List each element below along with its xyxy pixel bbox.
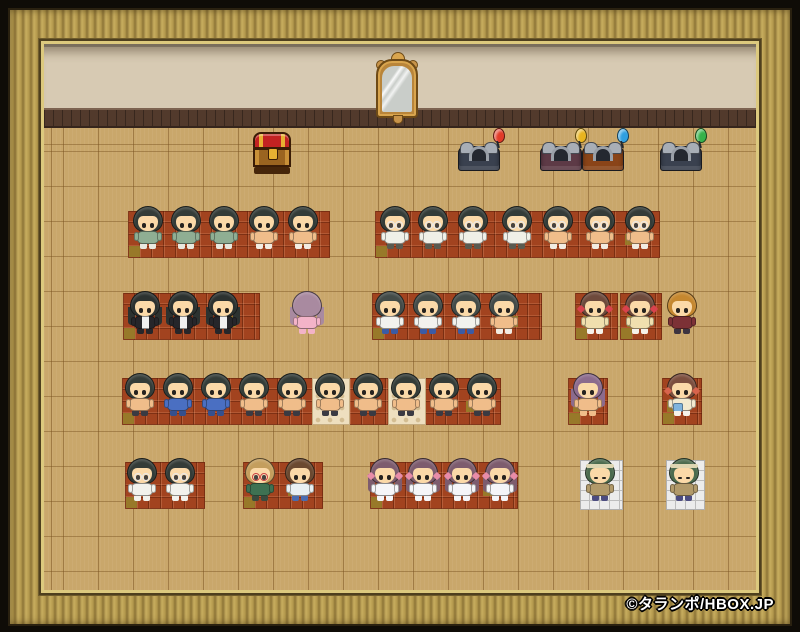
npc-eye-left <box>218 223 222 228</box>
glasses-icon <box>550 221 558 229</box>
npc-body <box>131 483 153 496</box>
npc-leg-right <box>641 329 648 334</box>
npc-head <box>292 291 322 317</box>
npc-eye-right <box>332 390 336 395</box>
npc-arm-right <box>187 399 192 408</box>
npc-arm-right <box>339 399 344 408</box>
chest-base <box>254 167 290 174</box>
npc-arm-left <box>448 484 453 493</box>
npc-body <box>589 231 611 244</box>
npc-leg-left <box>377 496 384 501</box>
npc-arm-right <box>301 399 306 408</box>
npc-arm-left <box>430 399 435 408</box>
npc-sprite-suit[interactable] <box>206 291 240 335</box>
npc-body <box>379 316 401 329</box>
npc-arm-right <box>377 399 382 408</box>
npc-body <box>137 231 159 244</box>
mirror-glass <box>382 66 412 112</box>
npc-arm-left <box>246 484 251 493</box>
npc-body <box>253 231 275 244</box>
npc-arm-right <box>509 484 514 493</box>
npc-arm-left <box>419 232 424 241</box>
npc-eye-right <box>188 223 192 228</box>
npc-arm-left <box>289 232 294 241</box>
npc-sprite-gray_shirtless[interactable] <box>487 291 521 335</box>
npc-arm-left <box>586 484 591 493</box>
npc-leg-left <box>425 244 432 249</box>
npc-eye-right <box>218 390 222 395</box>
npc-eye-right <box>597 308 601 313</box>
bed-seat[interactable] <box>457 140 501 172</box>
npc-sprite-glasses_shirtless[interactable] <box>583 206 617 250</box>
npc-arm-right <box>404 232 409 241</box>
npc-arm-left <box>586 232 591 241</box>
npc-sprite-glasses_clothed[interactable] <box>500 206 534 250</box>
npc-arm-right <box>649 317 654 326</box>
npc-arm-left <box>503 232 508 241</box>
npc-leg-right <box>369 411 376 416</box>
glasses-icon <box>180 473 188 481</box>
npc-leg-right <box>143 496 150 501</box>
npc-leg-left <box>458 329 465 334</box>
npc-sprite-suit[interactable] <box>166 291 200 335</box>
npc-leg-right <box>146 329 153 334</box>
npc-eye-right <box>502 475 506 480</box>
npc-leg-right <box>518 244 525 249</box>
npc-arm-right <box>513 317 518 326</box>
npc-leg-right <box>391 329 398 334</box>
headband <box>586 464 614 468</box>
npc-eye-left <box>678 477 682 479</box>
npc-arm-left <box>278 399 283 408</box>
npc-arm-right <box>491 399 496 408</box>
npc-eye-right <box>506 308 510 313</box>
npc-arm-right <box>693 484 698 493</box>
npc-body <box>281 398 303 411</box>
bed-seat[interactable] <box>581 140 625 172</box>
npc-sprite-brown_casual[interactable] <box>283 458 317 502</box>
npc-arm-right <box>597 399 602 408</box>
npc-leg-right <box>463 496 470 501</box>
npc-sprite-dark_shirtless[interactable] <box>465 373 499 417</box>
npc-eye-left <box>177 308 181 313</box>
npc-arm-right <box>609 232 614 241</box>
npc-eye-right <box>180 390 184 395</box>
npc-body <box>129 398 151 411</box>
npc-body <box>462 231 484 244</box>
npc-eye-right <box>430 308 434 313</box>
npc-arm-left <box>376 317 381 326</box>
npc-sprite-dark_shirtless[interactable] <box>389 373 423 417</box>
npc-arm-left <box>668 317 673 326</box>
npc-body <box>134 316 156 329</box>
npc-arm-left <box>626 232 631 241</box>
npc-arm-right <box>149 399 154 408</box>
npc-body <box>589 483 611 496</box>
treasure-chest[interactable] <box>253 132 291 174</box>
npc-leg-right <box>641 244 648 249</box>
npc-sprite-boy_green[interactable] <box>169 206 203 250</box>
npc-leg-right <box>225 244 232 249</box>
copyright-label: ©タランポ/HBOX.JP <box>626 593 774 614</box>
npc-leg-right <box>424 496 431 501</box>
npc-leg-right <box>683 329 690 334</box>
npc-body <box>471 398 493 411</box>
npc-leg-left <box>284 411 291 416</box>
npc-sprite-glasses_shirtless[interactable] <box>623 206 657 250</box>
npc-sprite-yellow_dress[interactable] <box>623 291 657 335</box>
npc-eye-left <box>324 390 328 395</box>
npc-leg-left <box>592 496 599 501</box>
npc-eye-right <box>302 475 306 480</box>
npc-eye-left <box>297 223 301 228</box>
npc-sprite-purple_long[interactable] <box>571 373 605 417</box>
npc-sprite-suit[interactable] <box>128 291 162 335</box>
npc-sprite-gold_spiky[interactable] <box>665 291 699 335</box>
npc-leg-right <box>187 244 194 249</box>
npc-eye-left <box>456 475 460 480</box>
npc-leg-right <box>474 244 481 249</box>
npc-eye-left <box>384 308 388 313</box>
npc-arm-left <box>354 399 359 408</box>
npc-eye-right <box>484 390 488 395</box>
npc-body <box>384 231 406 244</box>
npc-sprite-boy_green[interactable] <box>131 206 165 250</box>
npc-eye-right <box>590 390 594 395</box>
npc-leg-left <box>674 411 681 416</box>
npc-sprite-glasses_clothed[interactable] <box>378 206 412 250</box>
npc-sprite-blue_jacket[interactable] <box>161 373 195 417</box>
npc-eye-left <box>676 390 680 395</box>
npc-leg-left <box>208 411 215 416</box>
npc-body <box>169 483 191 496</box>
npc-eye-right <box>468 308 472 313</box>
npc-leg-right <box>265 244 272 249</box>
npc-arm-right <box>225 399 230 408</box>
npc-sprite-tee_jeans[interactable] <box>373 291 407 335</box>
npc-leg-right <box>184 329 191 334</box>
npc-leg-left <box>360 411 367 416</box>
npc-arm-left <box>468 399 473 408</box>
npc-sprite-purple_dress[interactable] <box>483 458 517 502</box>
glasses-icon <box>433 221 441 229</box>
npc-leg-left <box>674 329 681 334</box>
npc-arm-left <box>392 399 397 408</box>
npc-leg-left <box>496 329 503 334</box>
npc-leg-left <box>436 411 443 416</box>
npc-arm-right <box>195 232 200 241</box>
npc-sprite-purple_dress[interactable] <box>406 458 440 502</box>
glasses-icon <box>473 221 481 229</box>
npc-leg-left <box>550 244 557 249</box>
npc-body <box>493 316 515 329</box>
npc-arm-left <box>293 317 298 326</box>
npc-eye-left <box>594 477 598 479</box>
npc-arm-left <box>240 399 245 408</box>
game-screen: ©タランポ/HBOX.JP <box>0 0 800 632</box>
npc-sprite-glasses_clothed[interactable] <box>456 206 490 250</box>
npc-arm-right <box>471 484 476 493</box>
npc-arm-left <box>316 399 321 408</box>
npc-leg-left <box>172 496 179 501</box>
npc-sprite-blue_jacket[interactable] <box>199 373 233 417</box>
npc-leg-right <box>434 244 441 249</box>
npc-body <box>671 316 693 329</box>
npc-sprite-glasses_clothed[interactable] <box>416 206 450 250</box>
npc-arm-right <box>312 232 317 241</box>
npc-body <box>412 483 434 496</box>
npc-arm-left <box>286 484 291 493</box>
npc-arm-right <box>453 399 458 408</box>
glasses-icon <box>260 473 268 481</box>
npc-leg-right <box>445 411 452 416</box>
npc-sprite-dark_shirtless[interactable] <box>275 373 309 417</box>
npc-leg-right <box>301 496 308 501</box>
npc-sprite-boy_shirtless[interactable] <box>247 206 281 250</box>
bed-cushion-arch <box>593 146 613 161</box>
npc-leg-right <box>217 411 224 416</box>
npc-leg-left <box>580 411 587 416</box>
npc-arm-left <box>409 484 414 493</box>
npc-leg-right <box>181 496 188 501</box>
npc-leg-right <box>331 411 338 416</box>
npc-eye-left <box>498 308 502 313</box>
npc-leg-right <box>224 329 231 334</box>
npc-eye-right <box>142 390 146 395</box>
npc-body <box>357 398 379 411</box>
npc-arm-right <box>157 232 162 241</box>
npc-body <box>213 231 235 244</box>
npc-eye-right <box>408 390 412 395</box>
npc-leg-right <box>685 496 692 501</box>
npc-sprite-pigtail_girl[interactable] <box>665 373 699 417</box>
npc-sprite-pink_back[interactable] <box>290 291 324 335</box>
npc-leg-left <box>474 411 481 416</box>
npc-body <box>577 398 599 411</box>
npc-leg-right <box>407 411 414 416</box>
npc-leg-left <box>170 411 177 416</box>
npc-eye-left <box>582 390 586 395</box>
npc-leg-right <box>261 496 268 501</box>
npc-arm-right <box>604 317 609 326</box>
npc-arm-left <box>250 232 255 241</box>
glasses-icon <box>640 221 648 229</box>
npc-arm-right <box>309 484 314 493</box>
npc-sprite-green_monk[interactable] <box>583 458 617 502</box>
npc-sprite-glasses_dress[interactable] <box>163 458 197 502</box>
npc-arm-left <box>626 317 631 326</box>
npc-eye-right <box>642 308 646 313</box>
npc-leg-left <box>178 244 185 249</box>
npc-eye-right <box>150 223 154 228</box>
glasses-icon <box>395 221 403 229</box>
npc-eye-right <box>686 477 690 479</box>
npc-body <box>673 483 695 496</box>
npc-eye-left <box>172 390 176 395</box>
npc-arm-right <box>269 484 274 493</box>
npc-arm-left <box>670 484 675 493</box>
glasses-icon <box>134 473 142 481</box>
npc-eye-right <box>185 308 189 313</box>
npc-arm-left <box>166 484 171 493</box>
npc-eye-right <box>392 308 396 313</box>
npc-sprite-blonde_glasses[interactable] <box>243 458 277 502</box>
npc-sprite-dark_shirtless[interactable] <box>427 373 461 417</box>
npc-sprite-purple_dress[interactable] <box>368 458 402 502</box>
npc-eye-left <box>248 390 252 395</box>
npc-leg-right <box>396 244 403 249</box>
npc-leg-left <box>134 496 141 501</box>
npc-arm-left <box>381 232 386 241</box>
npc-sprite-tee_jeans[interactable] <box>411 291 445 335</box>
npc-sprite-boy_shirtless[interactable] <box>286 206 320 250</box>
npc-sprite-boy_green[interactable] <box>207 206 241 250</box>
npc-arm-left <box>544 232 549 241</box>
npc-arm-right <box>432 484 437 493</box>
npc-arm-left <box>371 484 376 493</box>
npc-leg-left <box>140 244 147 249</box>
npc-arm-left <box>574 399 579 408</box>
npc-sprite-dark_shirtless[interactable] <box>351 373 385 417</box>
npc-body <box>212 316 234 329</box>
npc-leg-left <box>387 244 394 249</box>
npc-body <box>451 483 473 496</box>
npc-body <box>296 316 318 329</box>
npc-sprite-yellow_dress[interactable] <box>578 291 612 335</box>
glasses-icon <box>517 221 525 229</box>
npc-eye-left <box>676 308 680 313</box>
headband <box>670 464 698 468</box>
npc-arm-right <box>475 317 480 326</box>
npc-body <box>455 316 477 329</box>
npc-arm-left <box>210 232 215 241</box>
npc-arm-right <box>154 317 159 326</box>
npc-eye-left <box>476 390 480 395</box>
npc-sprite-dark_shirtless[interactable] <box>123 373 157 417</box>
npc-leg-left <box>252 496 259 501</box>
npc-arm-right <box>189 484 194 493</box>
npc-sprite-dark_shirtless[interactable] <box>237 373 271 417</box>
npc-leg-right <box>601 496 608 501</box>
npc-eye-left <box>258 223 262 228</box>
blue-balloon-icon <box>617 128 629 143</box>
glasses-icon <box>632 221 640 229</box>
npc-eye-right <box>370 390 374 395</box>
npc-arm-left <box>164 399 169 408</box>
npc-leg-left <box>215 329 222 334</box>
wooden-floor <box>44 128 756 590</box>
npc-arm-left <box>459 232 464 241</box>
npc-sprite-purple_dress[interactable] <box>445 458 479 502</box>
npc-arm-left <box>209 317 214 326</box>
npc-body <box>175 231 197 244</box>
npc-eye-right <box>147 308 151 313</box>
npc-arm-right <box>316 317 321 326</box>
npc-arm-right <box>273 232 278 241</box>
npc-arm-left <box>486 484 491 493</box>
glasses-icon <box>592 221 600 229</box>
npc-eye-left <box>139 308 143 313</box>
npc-leg-left <box>256 244 263 249</box>
npc-eye-left <box>362 390 366 395</box>
npc-leg-right <box>505 329 512 334</box>
glasses-icon <box>387 221 395 229</box>
glasses-icon <box>252 473 260 481</box>
npc-sprite-dark_shirtless[interactable] <box>313 373 347 417</box>
npc-leg-right <box>179 411 186 416</box>
glasses-icon <box>142 473 150 481</box>
glasses-icon <box>509 221 517 229</box>
npc-eye-left <box>494 475 498 480</box>
npc-leg-right <box>308 329 315 334</box>
npc-arm-left <box>490 317 495 326</box>
npc-leg-right <box>467 329 474 334</box>
bed-seat[interactable] <box>539 140 583 172</box>
npc-sprite-tee_jeans[interactable] <box>449 291 483 335</box>
npc-leg-left <box>216 244 223 249</box>
chest-lid <box>253 132 291 149</box>
npc-eye-right <box>387 475 391 480</box>
npc-leg-left <box>465 244 472 249</box>
bed-cushion-arch <box>551 146 571 161</box>
glasses-icon <box>465 221 473 229</box>
npc-body <box>417 316 439 329</box>
npc-body <box>506 231 528 244</box>
npc-body <box>289 483 311 496</box>
npc-eye-left <box>134 390 138 395</box>
npc-eye-right <box>305 223 309 228</box>
npc-eye-left <box>180 223 184 228</box>
npc-arm-right <box>394 484 399 493</box>
npc-leg-left <box>492 496 499 501</box>
npc-eye-left <box>417 475 421 480</box>
npc-body <box>395 398 417 411</box>
npc-body <box>249 483 271 496</box>
npc-leg-right <box>589 411 596 416</box>
npc-arm-left <box>414 317 419 326</box>
npc-leg-right <box>601 244 608 249</box>
npc-eye-left <box>217 308 221 313</box>
wall-mirror-icon <box>374 50 420 124</box>
npc-arm-right <box>442 232 447 241</box>
npc-leg-left <box>299 329 306 334</box>
npc-leg-right <box>141 411 148 416</box>
npc-body <box>374 483 396 496</box>
npc-sprite-green_monk[interactable] <box>667 458 701 502</box>
npc-eye-right <box>425 475 429 480</box>
npc-body <box>172 316 194 329</box>
npc-eye-right <box>266 223 270 228</box>
npc-body <box>433 398 455 411</box>
npc-leg-right <box>386 496 393 501</box>
glasses-icon <box>425 221 433 229</box>
npc-leg-left <box>632 244 639 249</box>
npc-body <box>629 316 651 329</box>
npc-eye-left <box>589 308 593 313</box>
npc-leg-right <box>255 411 262 416</box>
npc-sprite-glasses_shirtless[interactable] <box>541 206 575 250</box>
npc-leg-right <box>596 329 603 334</box>
npc-arm-left <box>202 399 207 408</box>
npc-leg-left <box>132 411 139 416</box>
npc-leg-left <box>382 329 389 334</box>
npc-leg-left <box>246 411 253 416</box>
npc-sprite-glasses_dress[interactable] <box>125 458 159 502</box>
npc-arm-right <box>192 317 197 326</box>
npc-eye-left <box>400 390 404 395</box>
bed-seat[interactable] <box>659 140 703 172</box>
npc-arm-left <box>128 484 133 493</box>
